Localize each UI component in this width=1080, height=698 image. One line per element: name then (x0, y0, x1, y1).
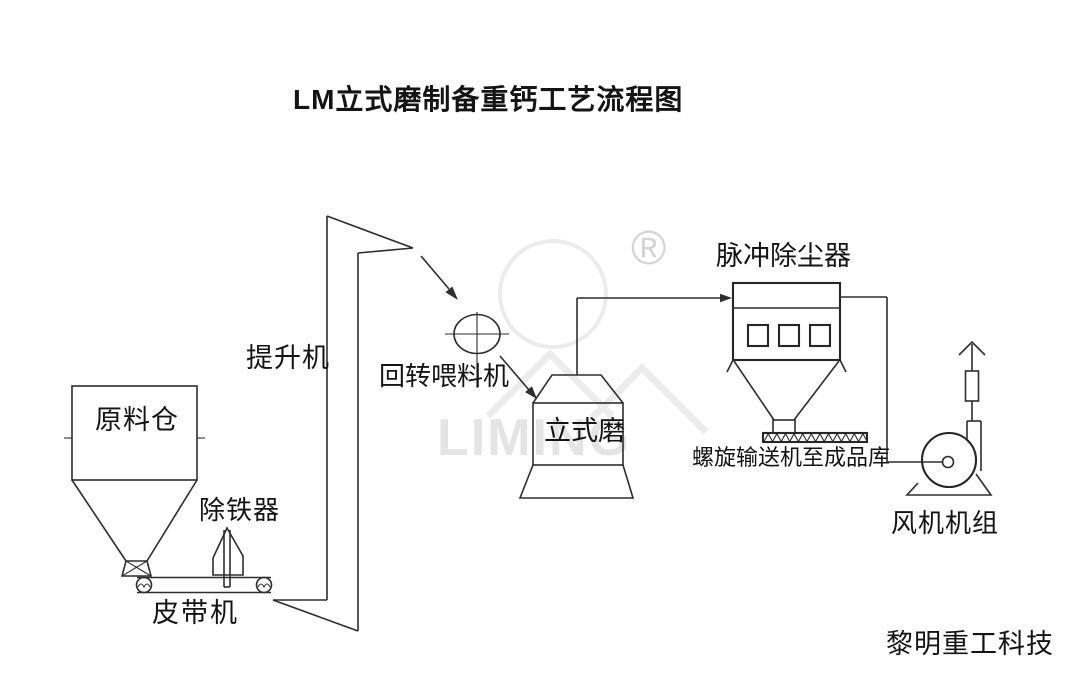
pulse-dust-collector-shape (727, 283, 846, 433)
fan-unit-shape (907, 342, 991, 495)
label-bucket-elevator: 提升机 (246, 344, 330, 374)
process-flow-page: ® LIMING (0, 0, 1080, 698)
label-iron-remover: 除铁器 (199, 496, 280, 525)
label-pulse-dust-collector: 脉冲除尘器 (716, 242, 851, 272)
label-screw-conveyor: 螺旋输送机至成品库 (692, 446, 890, 470)
bucket-elevator-shape (273, 216, 413, 631)
screw-conveyor-shape (763, 433, 867, 442)
duct-collector-to-fan (840, 297, 942, 462)
label-belt-conveyor: 皮带机 (152, 599, 239, 629)
label-fan-unit: 风机机组 (891, 509, 999, 538)
belt-conveyor-shape (137, 578, 272, 593)
duct-mill-to-collector (577, 294, 732, 375)
label-rotary-feeder: 回转喂料机 (379, 362, 509, 391)
page-title: LM立式磨制备重钙工艺流程图 (293, 85, 683, 116)
company-signature: 黎明重工科技 (886, 630, 1054, 660)
label-vertical-mill: 立式磨 (544, 417, 625, 447)
label-raw-material-silo: 原料仓 (95, 406, 179, 436)
arrow-elevator-to-feeder (421, 256, 458, 300)
